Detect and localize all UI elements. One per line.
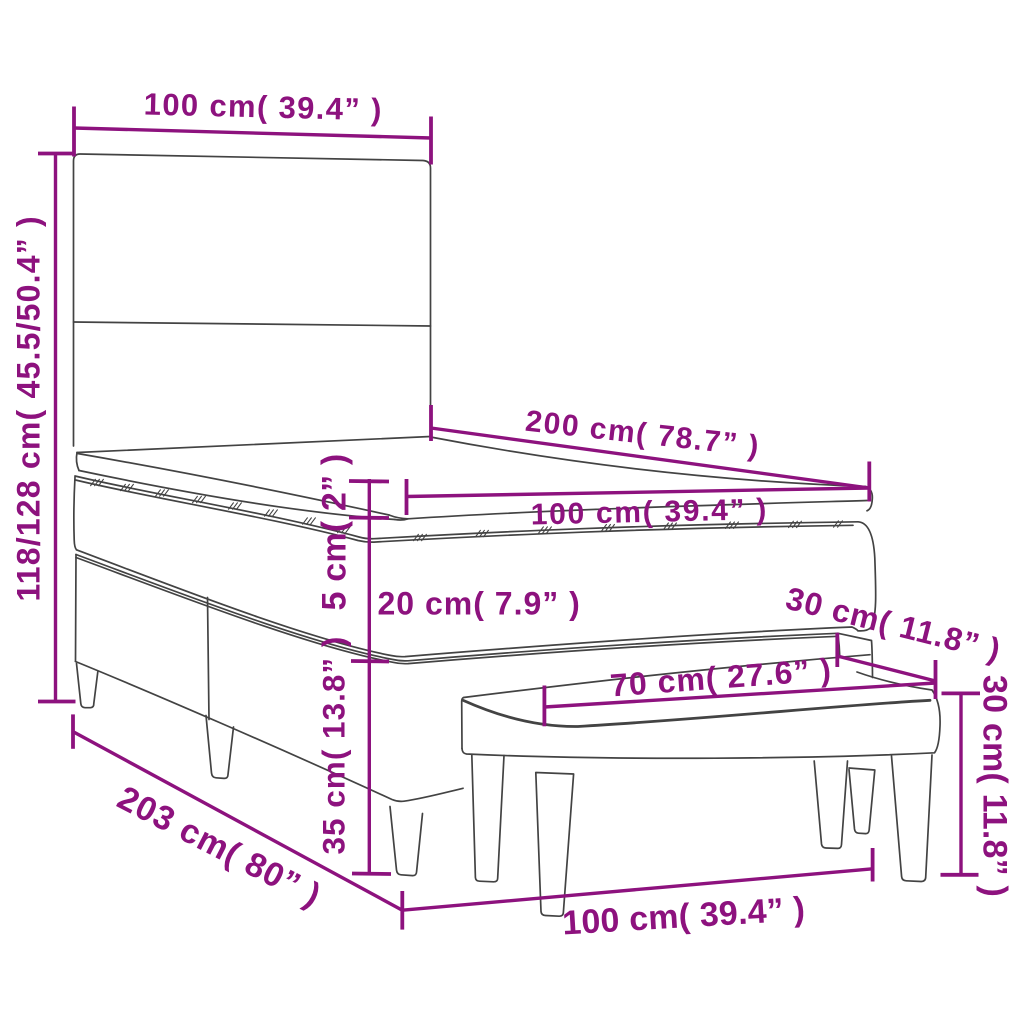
svg-text:118/128 cm( 45.5/50.4” ): 118/128 cm( 45.5/50.4” ) [11, 215, 47, 601]
svg-text:20 cm( 7.9” ): 20 cm( 7.9” ) [378, 586, 581, 622]
svg-text:200 cm( 78.7” ): 200 cm( 78.7” ) [524, 405, 762, 464]
svg-text:203 cm( 80” ): 203 cm( 80” ) [111, 779, 327, 915]
svg-text:100 cm( 39.4” ): 100 cm( 39.4” ) [561, 890, 806, 942]
svg-text:100 cm( 39.4” ): 100 cm( 39.4” ) [530, 493, 768, 531]
svg-text:30 cm( 11.8” ): 30 cm( 11.8” ) [976, 675, 1014, 897]
svg-text:100 cm( 39.4” ): 100 cm( 39.4” ) [143, 87, 383, 128]
svg-text:35 cm( 13.8” ): 35 cm( 13.8” ) [316, 636, 352, 855]
svg-text:5 cm( 2” ): 5 cm( 2” ) [316, 454, 354, 611]
